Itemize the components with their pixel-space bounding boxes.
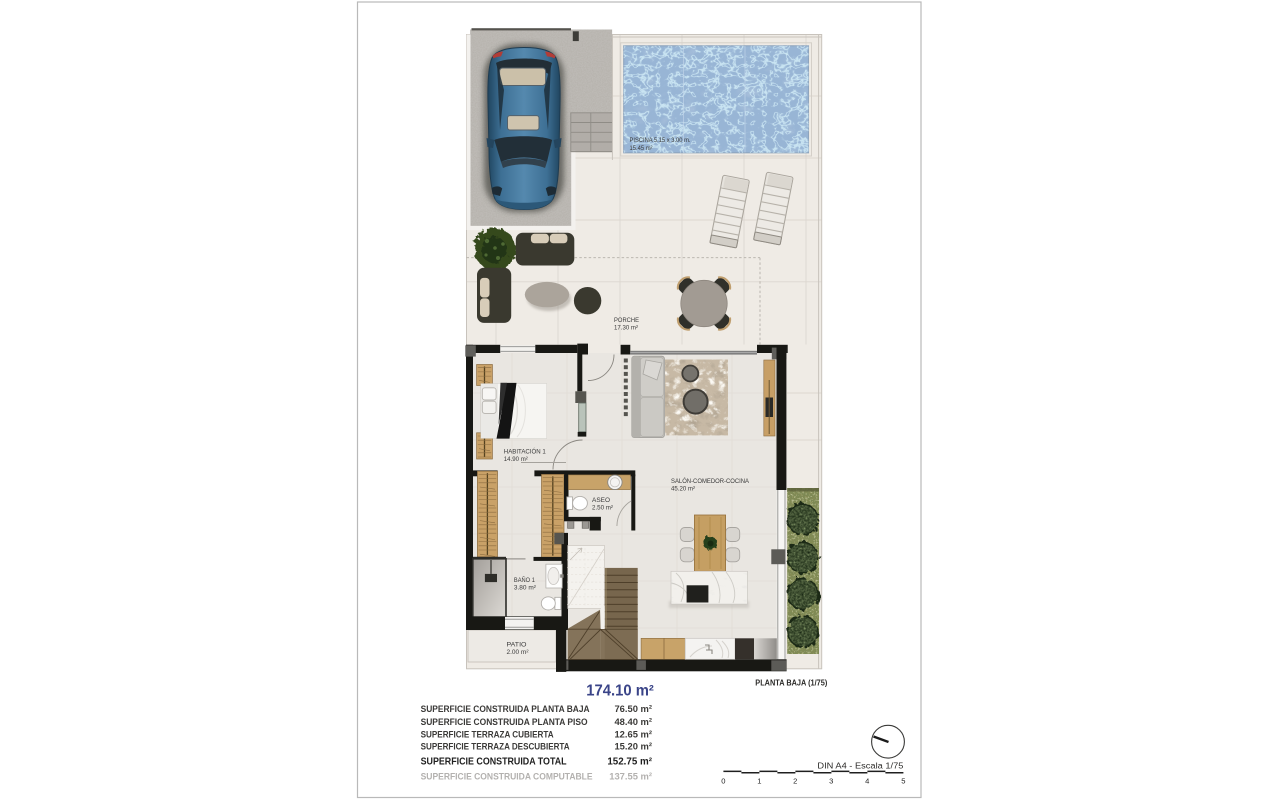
svg-text:0: 0 [721,777,725,786]
svg-text:4: 4 [865,777,869,786]
svg-text:HABITACIÓN 1: HABITACIÓN 1 [504,447,546,456]
svg-text:5: 5 [901,777,905,786]
svg-text:15.20 m²: 15.20 m² [614,741,652,752]
svg-text:76.50 m²: 76.50 m² [614,703,652,714]
svg-text:DIN A4 - Escala 1/75: DIN A4 - Escala 1/75 [817,761,903,771]
svg-text:SUPERFICIE CONSTRUIDA PLANTA P: SUPERFICIE CONSTRUIDA PLANTA PISO [421,716,588,727]
svg-text:45.20 m²: 45.20 m² [671,486,696,493]
svg-text:1: 1 [757,777,761,786]
svg-text:PATIO: PATIO [507,642,527,649]
svg-text:3.80 m²: 3.80 m² [514,585,537,592]
svg-text:174.10 m²: 174.10 m² [586,683,654,700]
svg-text:PORCHE: PORCHE [614,317,640,324]
svg-text:48.40 m²: 48.40 m² [614,716,652,727]
svg-text:2: 2 [793,777,797,786]
svg-text:137.55 m²: 137.55 m² [609,770,652,781]
svg-text:152.75 m²: 152.75 m² [607,757,652,768]
svg-text:PISCINA 5.15 x 3.00 m.: PISCINA 5.15 x 3.00 m. [630,137,691,144]
svg-text:3: 3 [829,777,833,786]
svg-text:15.45 m²: 15.45 m² [630,145,654,152]
svg-text:ASEO: ASEO [592,497,610,504]
svg-text:BAÑO 1: BAÑO 1 [514,575,535,584]
svg-text:SALÓN-COMEDOR-COCINA: SALÓN-COMEDOR-COCINA [671,476,750,485]
svg-text:12.65 m²: 12.65 m² [614,729,652,740]
svg-text:17.30 m²: 17.30 m² [614,325,639,332]
svg-text:14.90 m²: 14.90 m² [504,456,529,463]
svg-text:SUPERFICIE TERRAZA CUBIERTA: SUPERFICIE TERRAZA CUBIERTA [421,729,554,740]
svg-text:2.50 m²: 2.50 m² [592,505,614,512]
svg-text:SUPERFICIE CONSTRUIDA COMPUTAB: SUPERFICIE CONSTRUIDA COMPUTABLE [421,770,593,781]
svg-text:SUPERFICIE CONSTRUIDA TOTAL: SUPERFICIE CONSTRUIDA TOTAL [421,757,567,768]
svg-text:PLANTA BAJA (1/75): PLANTA BAJA (1/75) [755,678,827,688]
svg-text:SUPERFICIE CONSTRUIDA PLANTA B: SUPERFICIE CONSTRUIDA PLANTA BAJA [421,703,590,714]
svg-text:SUPERFICIE TERRAZA DESCUBIERTA: SUPERFICIE TERRAZA DESCUBIERTA [421,741,570,752]
svg-text:2.00 m²: 2.00 m² [507,649,530,656]
